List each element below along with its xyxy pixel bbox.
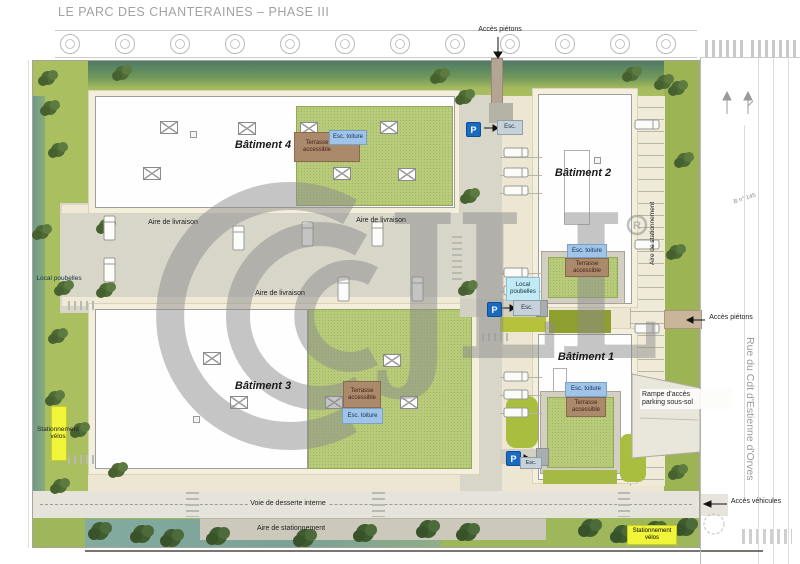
voie-desserte-label: Voie de desserte interne	[248, 500, 328, 508]
parking-icon: P	[506, 451, 521, 466]
registered-mark: R	[633, 220, 641, 232]
aire-livraison-label: Aire de livraison	[138, 219, 208, 227]
batiment2-label: Bâtiment 2	[549, 167, 617, 179]
acces-vehicules-label: Accès véhicules	[729, 498, 783, 506]
bike-parking-left-label: Stationnement vélos	[30, 426, 86, 441]
terrasse-box-b2: Terrasse accessible	[565, 258, 609, 277]
esc-box-south: Esc.	[520, 457, 542, 469]
bike-parking-right-label: Stationnement vélos	[629, 528, 675, 541]
parking-icon: P	[487, 302, 502, 317]
acces-pietons-right-label: Accès piétons	[706, 314, 756, 322]
lane-arrows	[723, 92, 753, 114]
page-title: LE PARC DES CHANTERAINES – PHASE III	[58, 5, 329, 19]
batiment4-label: Bâtiment 4	[228, 139, 298, 151]
terrasse-box-b1: Terrasse accessible	[566, 397, 606, 417]
local-poubelles-left-label: Local poubelles	[36, 275, 82, 282]
aire-stationnement-right-label: Aire de stationnement	[649, 188, 661, 278]
local-poubelles-center-box: Local poubelles	[506, 277, 540, 301]
rampe-line1: Rampe d'accès	[642, 391, 690, 398]
logo-arc-inner	[304, 270, 373, 362]
parking-icon: P	[466, 122, 481, 137]
esc-toiture-box-b1: Esc. toiture	[565, 382, 607, 397]
site-plan: JLL R LE PARC DES CHANTERAINES – PHASE I…	[0, 0, 800, 564]
aire-livraison-label: Aire de livraison	[245, 290, 315, 298]
esc-box-center: Esc.	[513, 300, 541, 316]
esc-toiture-box-b4: Esc. toiture	[329, 130, 367, 145]
bike-parking-right-box: Stationnement vélos	[627, 525, 677, 545]
batiment1-label: Bâtiment 1	[552, 351, 620, 363]
turnaround-dashed	[704, 514, 724, 534]
batiment3-label: Bâtiment 3	[228, 380, 298, 392]
esc-toiture-box-b2: Esc. toiture	[567, 244, 607, 258]
street-name: Rue du Cdt d'Estienne d'Orves	[742, 336, 756, 481]
esc-box-north: Esc.	[497, 120, 523, 135]
esc-toiture-box-b3: Esc. toiture	[342, 408, 383, 424]
aire-stationnement-bottom-label: Aire de stationnement	[252, 525, 330, 533]
rampe-line2: parking sous-sol	[642, 399, 693, 406]
acces-pietons-top-label: Accès piétons	[474, 26, 526, 34]
terrasse-box-b3: Terrasse accessible	[343, 381, 381, 408]
rampe-label: Rampe d'accès parking sous-sol	[640, 389, 732, 409]
sketch-tree-row	[61, 35, 676, 54]
aire-livraison-label: Aire de livraison	[346, 217, 416, 225]
